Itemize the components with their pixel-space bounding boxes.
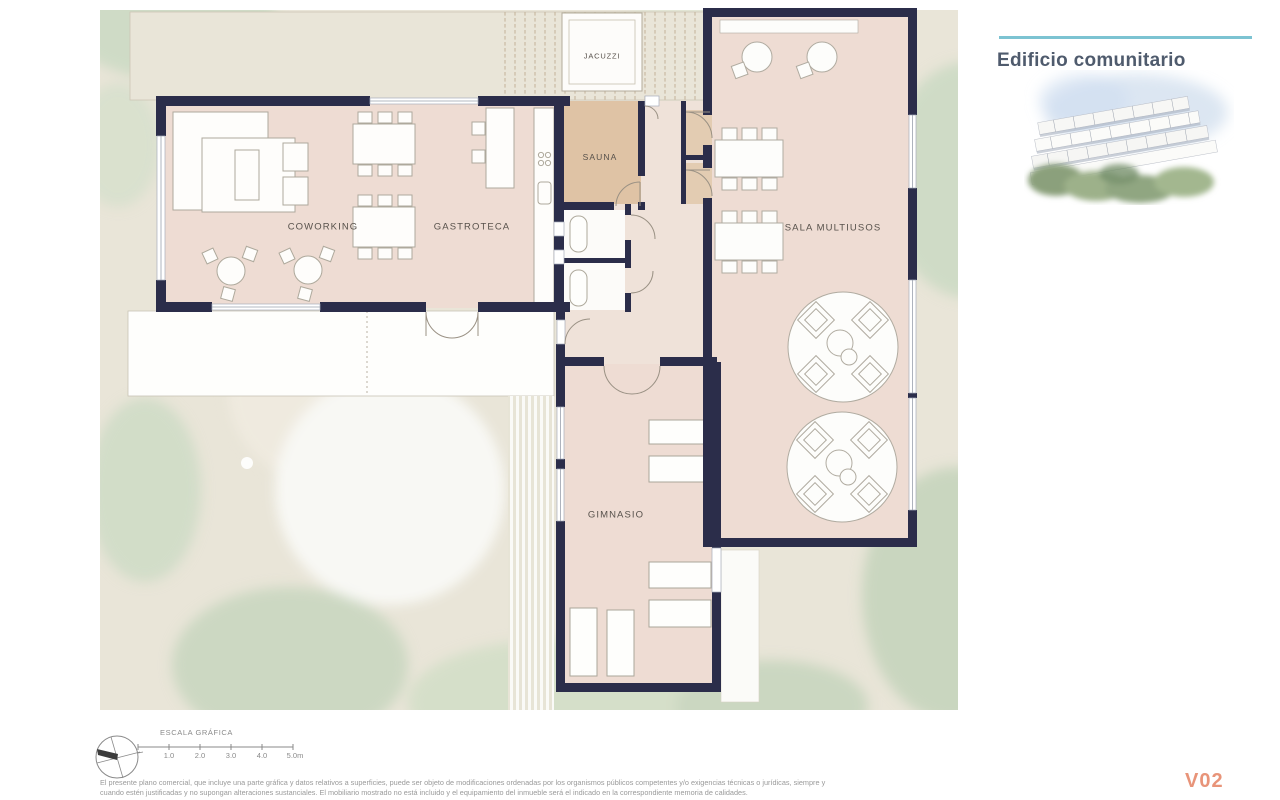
room-label-sauna: SAUNA (583, 152, 618, 162)
round-table (294, 256, 322, 284)
room-label-jacuzzi: JACUZZI (584, 52, 620, 61)
compass (96, 736, 143, 778)
round-table (807, 42, 837, 72)
version-label: V02 (1185, 770, 1224, 793)
coffee-table (235, 150, 259, 200)
armchair (283, 143, 308, 171)
table (715, 223, 783, 260)
page: JACUZZI SAUNA COWORKING GASTROTECA SALA … (0, 0, 1280, 800)
disclaimer-line2: cuando estén justificadas y no supongan … (100, 788, 945, 798)
lounge-area (788, 292, 898, 402)
building-illustration (1024, 70, 1234, 205)
side-walkway (721, 550, 759, 702)
room-label-sala-multiusos: SALA MULTIUSOS (785, 223, 882, 234)
scale-tick-label: 3.0 (226, 751, 236, 760)
panel-title: Edificio comunitario (997, 50, 1186, 72)
table (353, 207, 415, 247)
scale-bar-title: ESCALA GRÁFICA (160, 728, 233, 737)
table (715, 140, 783, 177)
disclaimer-line1: El presente plano comercial, que incluye… (100, 778, 945, 788)
bathtub (570, 216, 587, 252)
boardwalk-stripes (508, 396, 554, 710)
top-terrace (130, 12, 708, 100)
disclaimer-text: El presente plano comercial, que incluye… (100, 778, 945, 797)
scale-tick-label: 1.0 (164, 751, 174, 760)
lounge-area (787, 412, 897, 522)
bathtub (570, 270, 587, 306)
room-label-gastroteca: GASTROTECA (434, 222, 510, 233)
scale-tick-label: 4.0 (257, 751, 267, 760)
scale-tick-label: 5.0m (287, 751, 304, 760)
scale-tick-label: 2.0 (195, 751, 205, 760)
counter (720, 20, 858, 33)
scale-bar-graphic (138, 744, 293, 750)
armchair (283, 177, 308, 205)
aseo2-floor (685, 163, 712, 204)
room-label-coworking: COWORKING (288, 222, 359, 233)
table (353, 124, 415, 164)
accent-line (999, 36, 1252, 39)
building-foliage (1028, 164, 1214, 203)
round-table (742, 42, 772, 72)
round-table (217, 257, 245, 285)
room-label-gimnasio: GIMNASIO (588, 510, 644, 521)
